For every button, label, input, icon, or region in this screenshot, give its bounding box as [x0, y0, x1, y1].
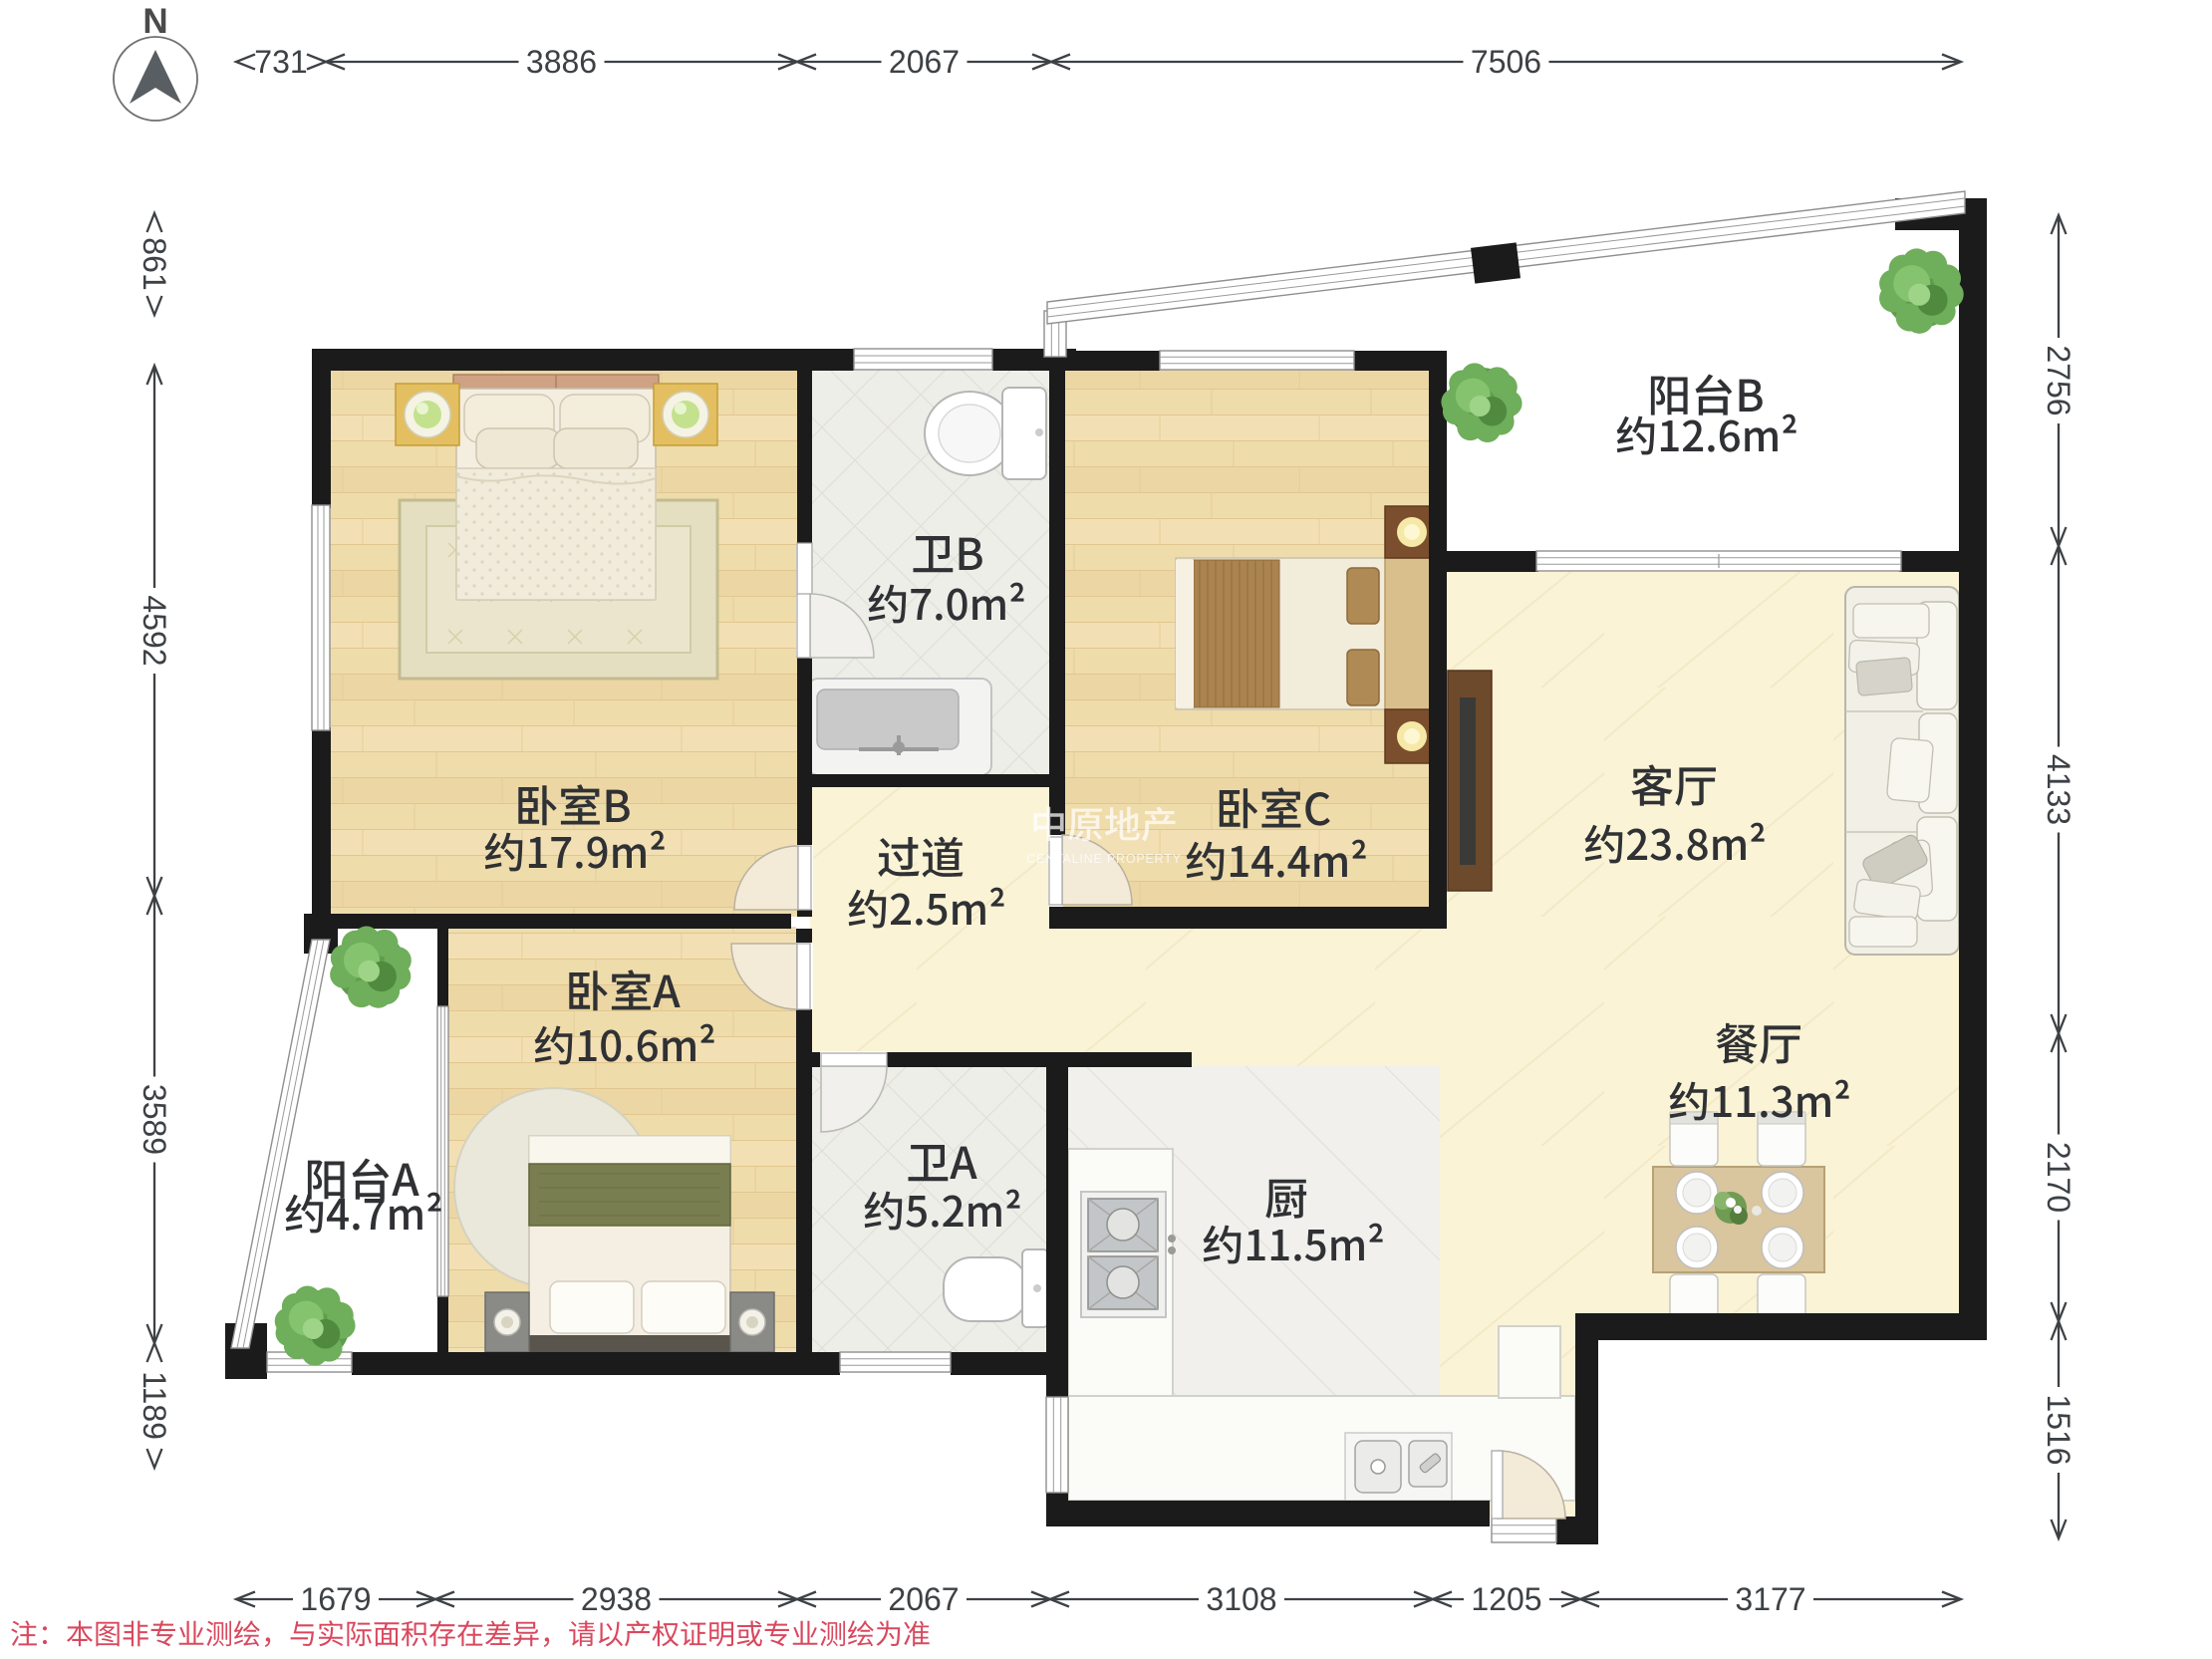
- svg-text:3177: 3177: [1735, 1581, 1805, 1617]
- svg-text:3886: 3886: [526, 44, 597, 80]
- svg-text:2938: 2938: [581, 1581, 652, 1617]
- svg-text:N: N: [142, 2, 167, 41]
- svg-text:4592: 4592: [137, 595, 172, 666]
- svg-text:2756: 2756: [2041, 345, 2076, 415]
- svg-text:4133: 4133: [2041, 754, 2076, 825]
- svg-text:3108: 3108: [1206, 1581, 1276, 1617]
- svg-text:2067: 2067: [888, 1581, 959, 1617]
- svg-text:1205: 1205: [1471, 1581, 1541, 1617]
- svg-text:861: 861: [137, 237, 172, 290]
- svg-text:3589: 3589: [137, 1084, 172, 1155]
- svg-text:CENTALINE PROPERTY: CENTALINE PROPERTY: [1026, 852, 1182, 866]
- svg-text:7506: 7506: [1471, 44, 1541, 80]
- svg-text:2170: 2170: [2041, 1142, 2076, 1213]
- svg-text:2067: 2067: [889, 44, 960, 80]
- svg-text:731: 731: [254, 44, 307, 80]
- svg-text:1189: 1189: [137, 1371, 172, 1440]
- svg-text:1679: 1679: [300, 1581, 371, 1617]
- svg-text:1516: 1516: [2041, 1394, 2076, 1465]
